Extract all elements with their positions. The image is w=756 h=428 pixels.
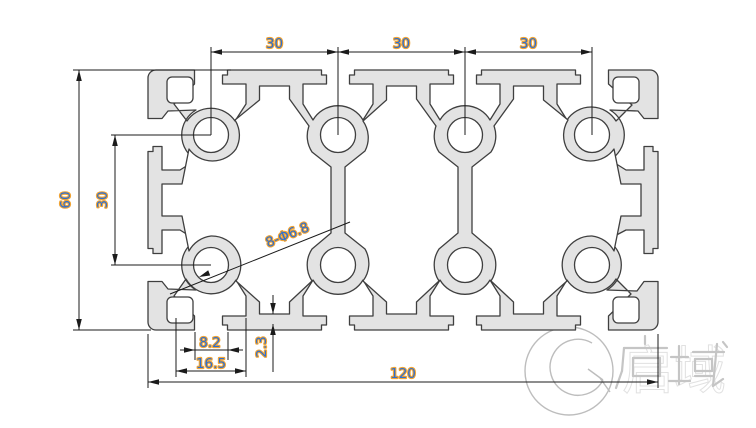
dim-overall-height-label: 60: [58, 191, 74, 208]
dim-top-spacing-1-label: 30: [266, 36, 283, 52]
corner-channel-hole-1: [167, 77, 193, 103]
dimension-arrow: [338, 49, 349, 55]
dim-top-spacing-2-label: 30: [393, 36, 410, 52]
dimension-arrow: [327, 49, 338, 55]
corner-channel-hole-3: [167, 297, 193, 323]
dimension-arrow: [454, 49, 465, 55]
dimension-arrow: [235, 368, 246, 374]
dimension-arrow: [228, 347, 239, 353]
dim-hole-row-spacing-label: 30: [95, 191, 111, 208]
profile-technical-drawing: 启域 30 30 30 60 30 8-Φ6.8 8.2 16.5 2.3 12…: [0, 0, 756, 428]
cad-drawing-canvas: 启域 30 30 30 60 30 8-Φ6.8 8.2 16.5 2.3 12…: [0, 0, 756, 428]
watermark-q-swirl: [550, 339, 610, 395]
dimension-arrow: [112, 135, 118, 146]
dimension-arrow: [112, 254, 118, 265]
dim-slot-opening-label: 8.2: [199, 335, 220, 351]
dimension-arrow: [76, 70, 82, 81]
bolt-hole: [575, 248, 610, 283]
dim-top-spacing-3-label: 30: [520, 36, 537, 52]
dimension-arrow: [211, 49, 222, 55]
dim-slot-lip-thickness-label: 2.3: [254, 336, 270, 357]
bolt-hole: [321, 248, 356, 283]
corner-channel-hole-4: [613, 297, 639, 323]
watermark-logo: 启域: [525, 327, 727, 415]
dimension-arrow: [465, 49, 476, 55]
dimension-arrow: [148, 379, 159, 385]
dimension-arrow: [76, 319, 82, 330]
dimension-arrow: [581, 49, 592, 55]
dim-slot-inner-width-label: 16.5: [196, 356, 226, 372]
corner-channel-hole-2: [613, 77, 639, 103]
bolt-hole: [448, 248, 483, 283]
dimension-arrow: [184, 347, 195, 353]
profile-cross-section: [148, 70, 658, 330]
dim-overall-width-label: 120: [390, 366, 416, 382]
dimension-arrow: [176, 368, 187, 374]
